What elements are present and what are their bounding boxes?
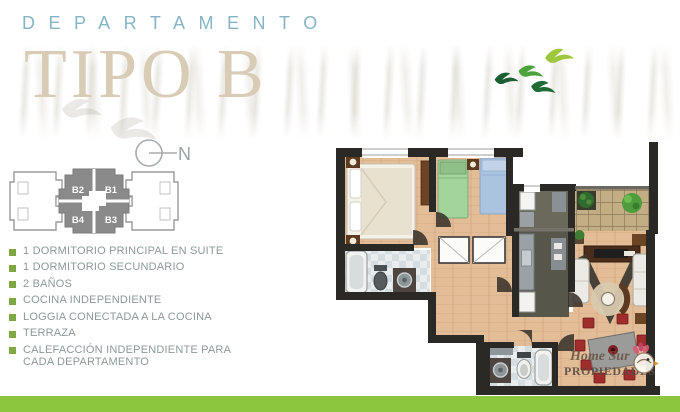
unit-label-b3: B3 xyxy=(105,215,117,226)
floor-plan: Home Sur PROPIEDADES xyxy=(336,142,662,398)
bathtub xyxy=(535,350,552,385)
building-key-plan: B2 B1 B4 B3 xyxy=(5,159,183,243)
master-wardrobe xyxy=(421,161,430,205)
nightstand xyxy=(467,159,479,170)
bullet-square-icon xyxy=(9,347,16,354)
feature-text: 1 DORMITORIO PRINCIPAL EN SUITE xyxy=(23,245,223,257)
list-item: 1 DORMITORIO SECUNDARIO xyxy=(9,261,239,273)
blue-single-bed xyxy=(480,158,510,214)
rug-coffee-table xyxy=(591,282,627,316)
terrace-planter-plant xyxy=(577,191,596,210)
bullet-square-icon xyxy=(9,298,16,305)
keyplan-left-wing xyxy=(10,172,62,230)
keyplan-center-block xyxy=(59,169,129,233)
bullet-square-icon xyxy=(9,265,16,272)
keyplan-right-wing xyxy=(126,172,178,230)
feature-text: COCINA INDEPENDIENTE xyxy=(23,294,161,306)
loggia-divider xyxy=(514,228,574,232)
sink-vanity xyxy=(393,268,416,292)
bathtub xyxy=(346,251,367,293)
birds-icon xyxy=(492,42,592,104)
feature-text: 2 BAÑOS xyxy=(23,278,72,290)
feature-text: CALEFACCIÓN INDEPENDIENTE PARA CADA DEPA… xyxy=(23,344,239,369)
master-bed xyxy=(347,164,415,239)
feature-text: TERRAZA xyxy=(23,327,76,339)
list-item: TERRAZA xyxy=(9,327,239,339)
feature-list: 1 DORMITORIO PRINCIPAL EN SUITE 1 DORMIT… xyxy=(9,245,239,373)
potted-plant xyxy=(575,230,585,244)
slide-canvas: DEPARTAMENTO TIPO B N xyxy=(0,0,680,412)
bullet-square-icon xyxy=(9,331,16,338)
green-single-bed xyxy=(438,160,468,218)
list-item: 1 DORMITORIO PRINCIPAL EN SUITE xyxy=(9,245,239,257)
unit-label-b4: B4 xyxy=(72,215,85,226)
feature-text: 1 DORMITORIO SECUNDARIO xyxy=(23,261,184,273)
bird-light-green-icon xyxy=(544,47,574,64)
sink-vanity xyxy=(490,348,513,383)
unit-label-b1: B1 xyxy=(105,185,118,196)
unit-type-title: TIPO B xyxy=(24,40,268,110)
unit-label-b2: B2 xyxy=(72,185,84,196)
logo-script-text: Home Sur xyxy=(569,349,630,364)
list-item: COCINA INDEPENDIENTE xyxy=(9,294,239,306)
list-item: CALEFACCIÓN INDEPENDIENTE PARA CADA DEPA… xyxy=(9,344,239,369)
terrace-railing xyxy=(575,186,649,190)
footer-bar xyxy=(0,396,680,412)
bird-dark-green-icon xyxy=(494,72,519,85)
page-title: DEPARTAMENTO xyxy=(22,13,331,34)
toilet xyxy=(517,352,531,379)
terrace-bush-plant xyxy=(622,193,642,213)
bird-mid-green-icon xyxy=(518,65,544,78)
bullet-square-icon xyxy=(9,314,16,321)
bullet-square-icon xyxy=(9,249,16,256)
bullet-square-icon xyxy=(9,281,16,288)
list-item: 2 BAÑOS xyxy=(9,278,239,290)
bird-dark-green2-icon xyxy=(531,80,557,95)
feature-text: LOGGIA CONECTADA A LA COCINA xyxy=(23,311,212,323)
list-item: LOGGIA CONECTADA A LA COCINA xyxy=(9,311,239,323)
toilet xyxy=(374,265,387,290)
